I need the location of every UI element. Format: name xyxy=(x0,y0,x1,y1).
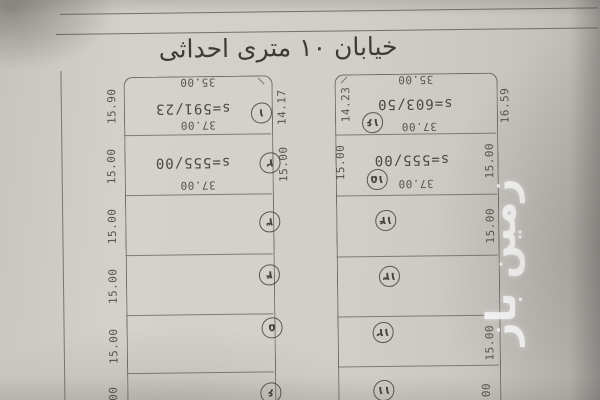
dim-label: 15.00 xyxy=(334,145,347,181)
dim-label: 14.23 xyxy=(339,87,352,123)
dim-label: 15.00 xyxy=(483,143,496,179)
street-edge-line-top xyxy=(60,7,598,15)
plot-number-badge: ۱۶ xyxy=(362,112,383,133)
left-boundary-line xyxy=(60,71,65,400)
plot-number-badge: ۱۱ xyxy=(373,380,394,400)
plot-number: ۱۱ xyxy=(377,385,391,396)
dim-label: 37.00 xyxy=(398,177,434,190)
dim-label: 15.00 xyxy=(106,208,119,244)
plot-number: ۱۴ xyxy=(379,215,393,226)
plot-number-badge: ۵ xyxy=(261,317,282,338)
plot-number: ۱۵ xyxy=(370,174,384,185)
plot-number: ۴ xyxy=(266,269,273,280)
plot-number: ۱۲ xyxy=(376,327,390,338)
street-title: خیابان ۱۰ متری احداثی xyxy=(113,31,443,64)
area-label: s=591/23 xyxy=(155,100,231,117)
dim-label: 15.90 xyxy=(105,88,118,124)
dim-label: 35.00 xyxy=(180,76,216,89)
plot-number-badge: ۶ xyxy=(260,382,281,400)
area-label: s=555/00 xyxy=(155,154,231,171)
dim-label: 37.00 xyxy=(180,179,216,192)
dim-label: 15.00 xyxy=(107,386,120,400)
plot-number: ۱ xyxy=(258,107,265,118)
plot-number: ۵ xyxy=(269,322,276,333)
plot-number-badge: ۱۴ xyxy=(375,210,396,231)
dim-label: 15.00 xyxy=(480,383,493,400)
plot-number-badge: ۱ xyxy=(251,102,272,123)
area-label: s=555/00 xyxy=(374,151,450,168)
dim-label: 37.00 xyxy=(180,119,216,132)
dim-label: 15.00 xyxy=(106,268,119,304)
plot-number-badge: ۲ xyxy=(259,152,280,173)
dim-label: 14.17 xyxy=(275,89,288,125)
plot-number-badge: ۴ xyxy=(259,264,280,285)
dim-label: 35.00 xyxy=(398,73,434,86)
dim-label: 15.00 xyxy=(105,148,118,184)
dim-label: 37.00 xyxy=(401,120,437,133)
dim-label: 16.59 xyxy=(498,88,511,124)
area-label: s=603/50 xyxy=(377,95,453,112)
plot-number: ۱۳ xyxy=(383,271,397,282)
plot-number: ۱۶ xyxy=(366,117,380,128)
plot-number: ۲ xyxy=(267,157,274,168)
plot-number-badge: ۱۳ xyxy=(379,266,400,287)
dim-label: 15.00 xyxy=(107,328,120,364)
scanned-plot-plan: { "street": { "title": "خیابان ۱۰ متری ا… xyxy=(0,0,600,400)
plot-number-badge: ۱۲ xyxy=(372,322,393,343)
watermark-zaminbaz: زمین باز xyxy=(479,178,525,345)
plot-number: ۶ xyxy=(267,387,274,398)
plot-number-badge: ۳ xyxy=(259,211,280,232)
plot-number-badge: ۱۵ xyxy=(367,169,388,190)
plot-number: ۳ xyxy=(266,216,273,227)
